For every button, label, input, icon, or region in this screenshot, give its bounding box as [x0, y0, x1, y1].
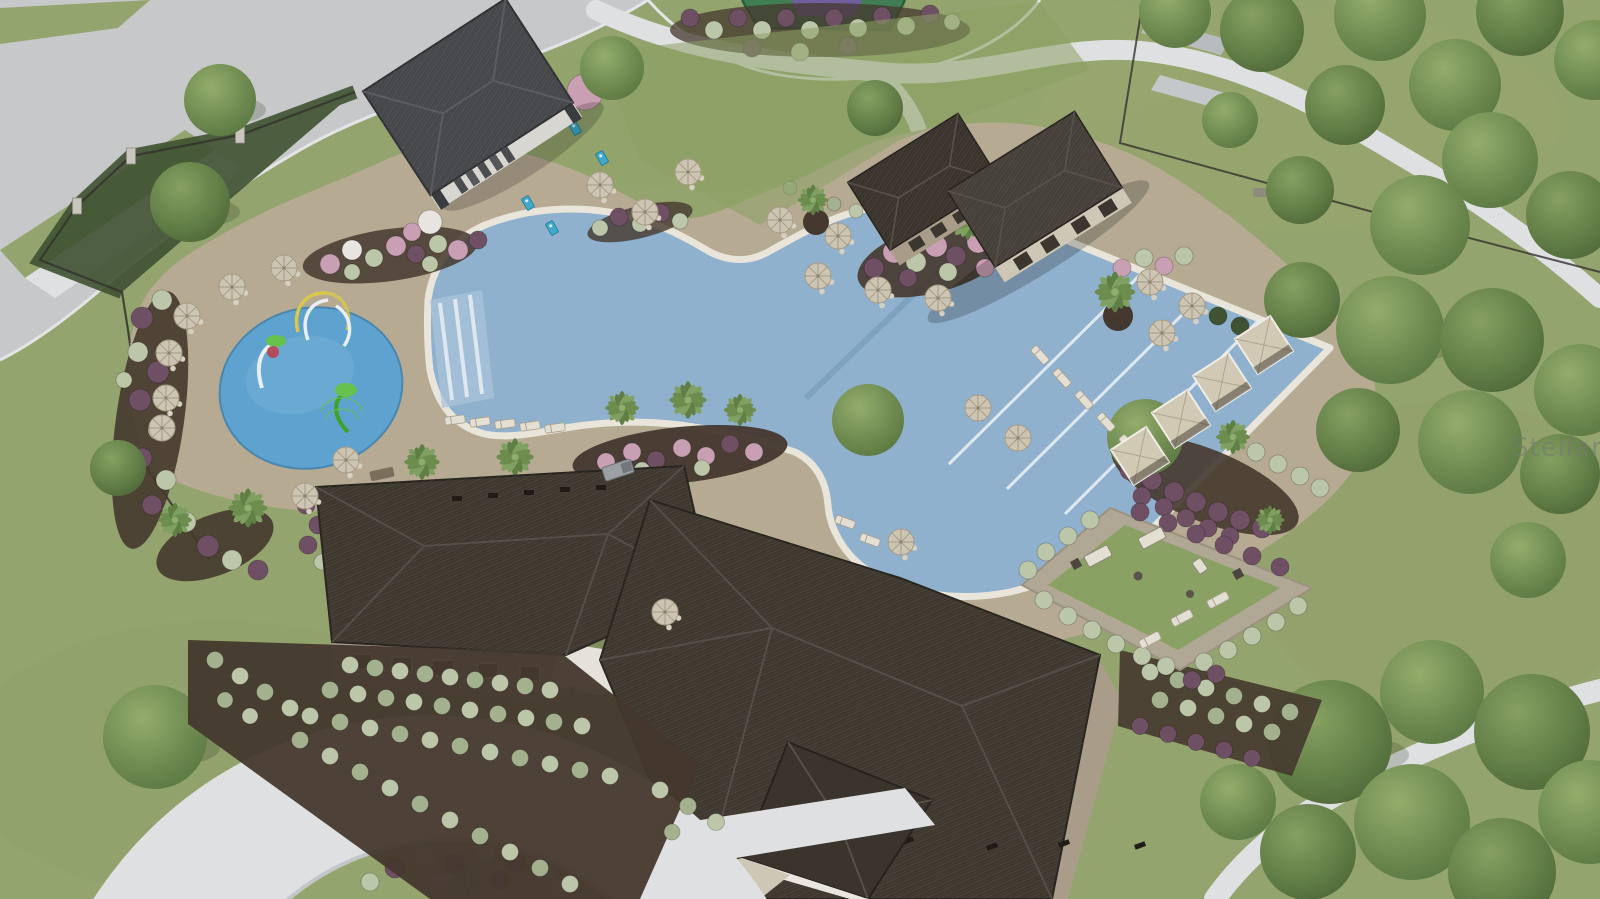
- watermark-text: StellarMLS: [1512, 433, 1600, 463]
- aerial-rendering: StellarMLS: [0, 0, 1600, 899]
- palm-planter: [803, 209, 829, 235]
- spray-ball: [267, 346, 279, 358]
- scene-canvas: StellarMLS: [0, 0, 1600, 899]
